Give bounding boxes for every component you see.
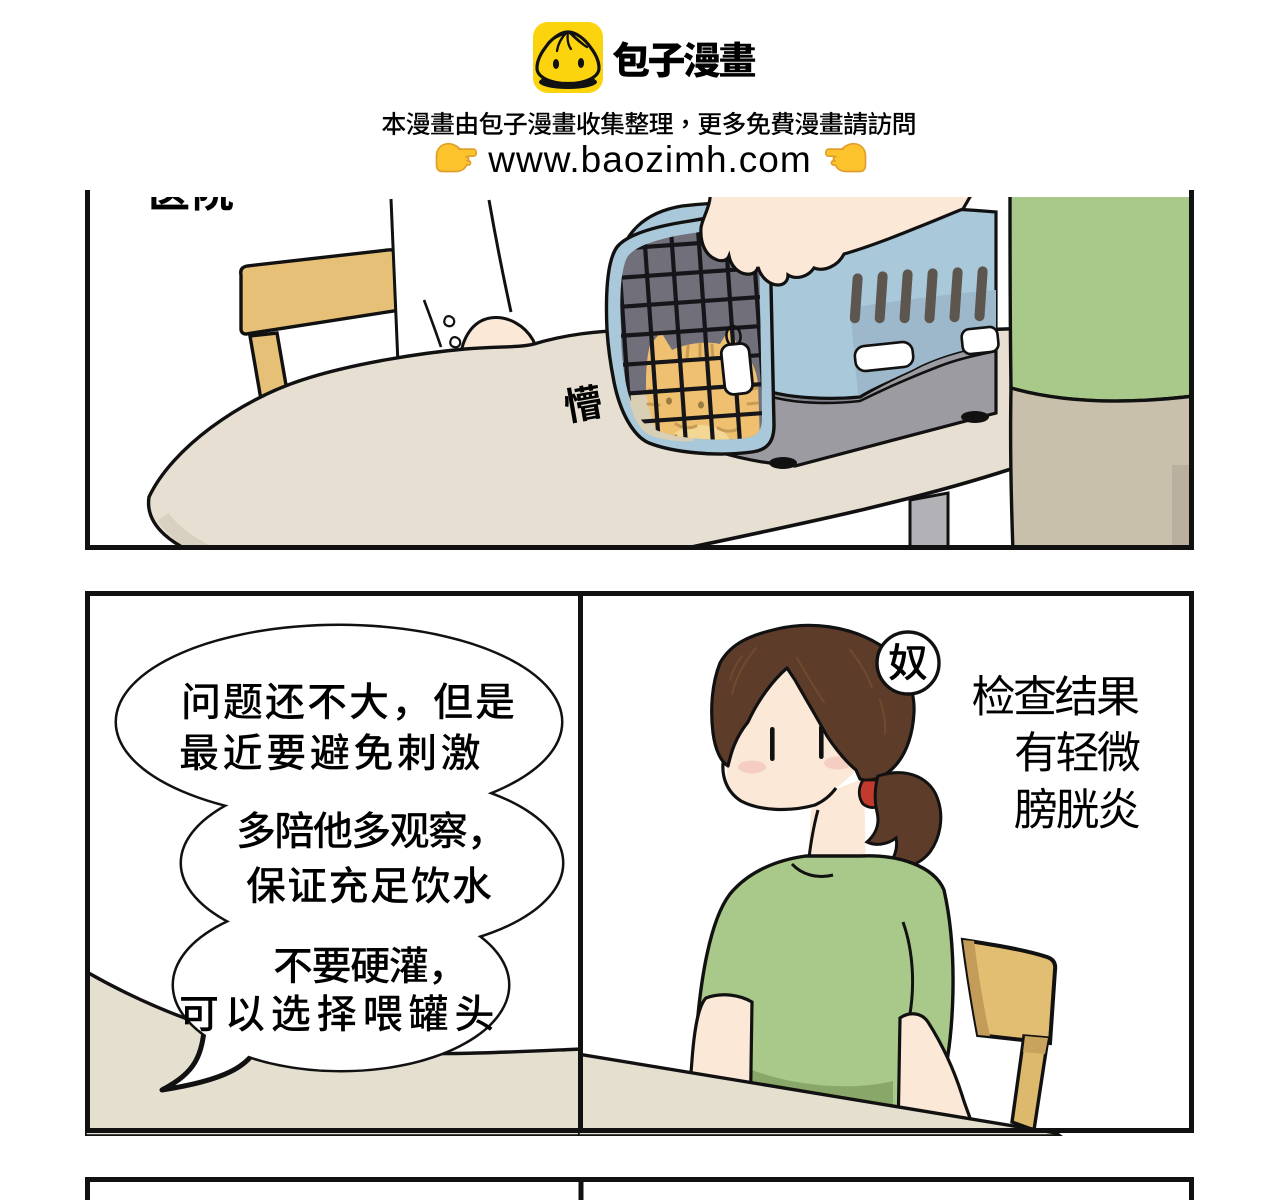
svg-text:www.baozimh.com: www.baozimh.com [487,139,811,180]
